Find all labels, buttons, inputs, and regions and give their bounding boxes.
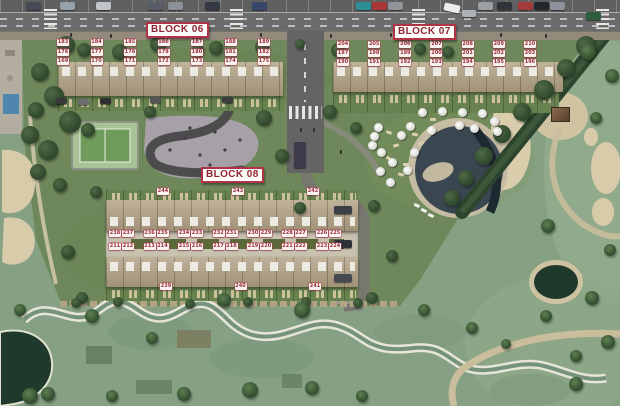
tree-icon [275, 149, 289, 163]
unit-badge: 180 [191, 49, 203, 56]
parasol-icon [377, 148, 386, 157]
palm-tree-icon [540, 310, 552, 322]
unit-badge: 207 [430, 41, 442, 48]
unit-badge: 220 [260, 243, 272, 250]
car-icon [518, 2, 533, 10]
palm-tree-icon [177, 387, 191, 401]
tree-icon [21, 126, 39, 144]
unit-badge: 194 [462, 59, 474, 66]
car-icon [372, 2, 387, 10]
block06-badge-row-middle: 176177178179180181182 [57, 49, 270, 56]
unit-badge: 187 [191, 39, 203, 46]
hedge-square [136, 380, 172, 394]
badge-pair: 228227 [282, 230, 307, 237]
golf-kiosk-hut [551, 107, 570, 122]
unit-badge: 229 [260, 230, 272, 237]
unit-badge: 203 [524, 50, 536, 57]
tree-icon [59, 111, 81, 133]
pond [534, 265, 578, 299]
sand-bunker [584, 128, 598, 146]
block08-corner-badges-top: 244243242 [157, 188, 319, 195]
palm-tree-icon [604, 244, 616, 256]
parasol-icon [374, 123, 383, 132]
unit-badge: 182 [258, 49, 270, 56]
palm-tree-icon [590, 112, 602, 124]
palm-tree-icon [294, 302, 310, 318]
palm-tree-icon [242, 382, 258, 398]
hedge-square [282, 374, 302, 388]
unit-badge: 218 [226, 243, 238, 250]
palm-tree-icon [501, 339, 511, 349]
tree-icon [113, 297, 123, 307]
tree-icon [256, 110, 272, 126]
palm-tree-icon [41, 387, 55, 401]
badge-pair: 221222 [282, 243, 307, 250]
badge-pair: 213214 [144, 243, 169, 250]
pedestrian-icon [110, 34, 112, 38]
palm-tree-icon [585, 291, 599, 305]
tree-icon [475, 147, 493, 165]
terrace-furniture [7, 75, 13, 81]
parasol-icon [388, 158, 397, 167]
tree-icon [81, 123, 95, 137]
unit-badge: 197 [337, 50, 349, 57]
unit-badge: 242 [307, 188, 319, 195]
badge-pair: 211212 [109, 243, 134, 250]
parasol-icon [427, 126, 436, 135]
pedestrian-icon [330, 34, 332, 38]
sand-bunker [592, 198, 614, 226]
unit-badge: 235 [157, 230, 169, 237]
block07-badge-row-middle: 197198199200201202203 [337, 50, 536, 57]
palm-tree-icon [569, 377, 583, 391]
tree-icon [513, 103, 531, 121]
unit-badge: 195 [493, 59, 505, 66]
palm-tree-icon [305, 381, 319, 395]
tree-icon [185, 299, 195, 309]
unit-badge: 174 [225, 58, 237, 65]
unit-badge: 189 [258, 39, 270, 46]
tree-icon [386, 250, 398, 262]
badge-pair: 234233 [178, 230, 203, 237]
unit-badge: 206 [399, 41, 411, 48]
parasol-icon [438, 107, 447, 116]
unit-badge: 226 [316, 230, 328, 237]
block08-badge-row-lower: 2112122132142152162172182192202212222232… [109, 243, 341, 250]
unit-badge: 192 [399, 59, 411, 66]
unit-badge: 202 [493, 50, 505, 57]
unit-badge: 184 [91, 39, 103, 46]
tree-icon [557, 59, 575, 77]
parasol-icon [368, 141, 377, 150]
car-icon [334, 274, 352, 282]
pedestrian-icon [340, 150, 342, 154]
pedestrian-icon [390, 33, 392, 37]
pedestrian-icon [500, 33, 502, 37]
crosswalk [230, 9, 243, 29]
unit-badge: 200 [430, 50, 442, 57]
block06-badge-row-bottom: 169170171172173174175 [57, 58, 270, 65]
unit-badge: 243 [232, 188, 244, 195]
unit-badge: 199 [399, 50, 411, 57]
sand-bunker [591, 142, 620, 194]
unit-badge: 190 [337, 59, 349, 66]
tree-icon [28, 102, 44, 118]
unit-badge: 234 [178, 230, 190, 237]
tree-icon [38, 140, 58, 160]
car-icon [222, 97, 233, 103]
badge-pair: 230229 [247, 230, 272, 237]
unit-badge: 228 [282, 230, 294, 237]
block08-north-houses [106, 200, 358, 231]
unit-badge: 176 [57, 49, 69, 56]
parasol-icon [478, 109, 487, 118]
car-icon [294, 142, 306, 168]
badge-pair: 215216 [178, 243, 203, 250]
badge-pair: 232231 [213, 230, 238, 237]
palm-tree-icon [570, 350, 582, 362]
unit-badge: 171 [124, 58, 136, 65]
tree-icon [353, 298, 363, 308]
tree-icon [31, 63, 49, 81]
unit-badge: 241 [309, 283, 321, 290]
unit-badge: 178 [124, 49, 136, 56]
unit-badge: 222 [295, 243, 307, 250]
lane-line [0, 12, 620, 13]
unit-badge: 183 [57, 39, 69, 46]
car-icon [148, 2, 163, 10]
car-icon [534, 2, 549, 10]
pedestrian-icon [545, 34, 547, 38]
car-icon [388, 2, 403, 10]
block06-label: BLOCK 06 [146, 22, 209, 38]
palm-tree-icon [14, 304, 26, 316]
parasol-icon [455, 121, 464, 130]
block08-label: BLOCK 08 [201, 167, 264, 183]
unit-badge: 217 [213, 243, 225, 250]
unit-badge: 205 [368, 41, 380, 48]
car-icon [478, 2, 493, 10]
unit-badge: 221 [282, 243, 294, 250]
badge-pair: 238237 [109, 230, 134, 237]
unit-badge: 238 [109, 230, 121, 237]
lane-dashes [0, 18, 620, 20]
palm-tree-icon [541, 219, 555, 233]
tree-icon [534, 80, 554, 100]
unit-badge: 212 [122, 243, 134, 250]
car-icon [462, 10, 476, 17]
badge-pair: 226225 [316, 230, 341, 237]
palm-tree-icon [418, 304, 430, 316]
unit-badge: 170 [91, 58, 103, 65]
tree-icon [71, 298, 81, 308]
car-icon [334, 206, 352, 214]
block07-badge-row-bottom: 190191192193194195196 [337, 59, 536, 66]
unit-badge: 237 [122, 230, 134, 237]
parasol-icon [418, 108, 427, 117]
unit-badge: 201 [462, 50, 474, 57]
car-icon [150, 97, 161, 103]
sand-bunker [2, 217, 35, 264]
sun-lounger-icon [430, 118, 436, 121]
unit-badge: 230 [247, 230, 259, 237]
unit-badge: 216 [191, 243, 203, 250]
tree-icon [444, 190, 460, 206]
parasol-icon [493, 127, 502, 136]
block07-label: BLOCK 07 [393, 24, 456, 40]
unit-badge: 186 [158, 39, 170, 46]
parasol-icon [403, 166, 412, 175]
unit-badge: 236 [144, 230, 156, 237]
car-icon [168, 2, 183, 10]
unit-badge: 231 [226, 230, 238, 237]
unit-badge: 211 [109, 243, 121, 250]
unit-badge: 244 [157, 188, 169, 195]
car-icon [356, 2, 371, 10]
block07-houses [333, 62, 563, 92]
block06-houses [58, 62, 283, 96]
crosswalk [44, 9, 57, 29]
palm-tree-icon [106, 390, 118, 402]
palm-tree-icon [22, 388, 38, 404]
tree-icon [90, 186, 102, 198]
car-icon [78, 99, 89, 105]
badge-pair: 223224 [316, 243, 341, 250]
lane-dashes [0, 25, 620, 27]
neighbor-pool [3, 94, 19, 114]
unit-badge: 240 [235, 283, 247, 290]
unit-badge: 209 [493, 41, 505, 48]
block08-badge-row-upper: 2382372362352342332322312302292282272262… [109, 230, 341, 237]
unit-badge: 233 [191, 230, 203, 237]
car-icon [100, 98, 111, 104]
tree-icon [53, 178, 67, 192]
entrance-crosswalk [289, 106, 322, 119]
tree-icon [323, 105, 337, 119]
unit-badge: 188 [225, 39, 237, 46]
car-icon [497, 2, 512, 10]
car-icon [60, 2, 75, 10]
unit-badge: 239 [160, 283, 172, 290]
palm-tree-icon [605, 69, 619, 83]
unit-badge: 223 [316, 243, 328, 250]
palm-tree-icon [466, 322, 478, 334]
unit-badge: 204 [337, 41, 349, 48]
tree-icon [243, 297, 253, 307]
parasol-icon [386, 178, 395, 187]
palm-tree-icon [85, 309, 99, 323]
car-icon [550, 2, 565, 10]
unit-badge: 175 [258, 58, 270, 65]
unit-badge: 214 [157, 243, 169, 250]
unit-badge: 196 [524, 59, 536, 66]
unit-badge: 215 [178, 243, 190, 250]
parasol-icon [406, 122, 415, 131]
unit-badge: 213 [144, 243, 156, 250]
tree-icon [295, 39, 305, 49]
unit-badge: 225 [329, 230, 341, 237]
tree-icon [366, 292, 378, 304]
unit-badge: 193 [430, 59, 442, 66]
block06-badge-row-top: 183184185186187188189 [57, 39, 270, 46]
entrance-road-dashes [304, 44, 306, 102]
palm-tree-icon [580, 44, 596, 60]
palm-tree-icon [601, 335, 615, 349]
badge-pair: 236235 [144, 230, 169, 237]
lawn-mottle [210, 338, 314, 378]
car-icon [252, 2, 267, 10]
unit-badge: 219 [247, 243, 259, 250]
unit-badge: 227 [295, 230, 307, 237]
pedestrian-icon [70, 33, 72, 37]
parasol-icon [470, 124, 479, 133]
tree-icon [294, 202, 306, 214]
unit-badge: 181 [225, 49, 237, 56]
unit-badge: 224 [329, 243, 341, 250]
block06-gardens [58, 96, 283, 111]
badge-pair: 219220 [247, 243, 272, 250]
tree-icon [368, 200, 380, 212]
unit-badge: 210 [524, 41, 536, 48]
block08-corner-badges-bottom: 239240241 [160, 283, 321, 290]
terrace-furniture [5, 50, 15, 56]
palm-tree-icon [217, 293, 231, 307]
lawn-mottle [490, 374, 570, 406]
tree-icon [458, 170, 474, 186]
siteplan-aerial-view: BLOCK 06 183184185186187188189 176177178… [0, 0, 620, 406]
unit-badge: 172 [158, 58, 170, 65]
block07-badge-row-top: 204205206207208209210 [337, 41, 536, 48]
badge-pair: 217218 [213, 243, 238, 250]
unit-badge: 179 [158, 49, 170, 56]
pedestrian-icon [260, 33, 262, 37]
tree-icon [30, 164, 46, 180]
unit-badge: 169 [57, 58, 69, 65]
pedestrian-icon [300, 128, 302, 132]
car-icon [56, 98, 67, 104]
parasol-icon [458, 108, 467, 117]
car-icon [26, 2, 41, 10]
unit-badge: 208 [462, 41, 474, 48]
unit-badge: 177 [91, 49, 103, 56]
parasol-icon [397, 131, 406, 140]
dirt-patch [177, 330, 211, 348]
unit-badge: 191 [368, 59, 380, 66]
car-icon [96, 2, 111, 10]
parasol-icon [490, 117, 499, 126]
car-icon [586, 12, 601, 20]
palm-tree-icon [146, 332, 158, 344]
unit-badge: 185 [124, 39, 136, 46]
palm-tree-icon [356, 390, 368, 402]
car-icon [205, 2, 220, 10]
pedestrian-icon [313, 128, 315, 132]
unit-badge: 173 [191, 58, 203, 65]
tree-icon [144, 106, 156, 118]
parasol-icon [370, 132, 379, 141]
tree-icon [350, 122, 362, 134]
unit-badge: 198 [368, 50, 380, 57]
parasol-icon [376, 167, 385, 176]
unit-badge: 232 [213, 230, 225, 237]
hedge-square [86, 346, 112, 364]
parasol-icon [410, 148, 419, 157]
tree-icon [61, 245, 75, 259]
